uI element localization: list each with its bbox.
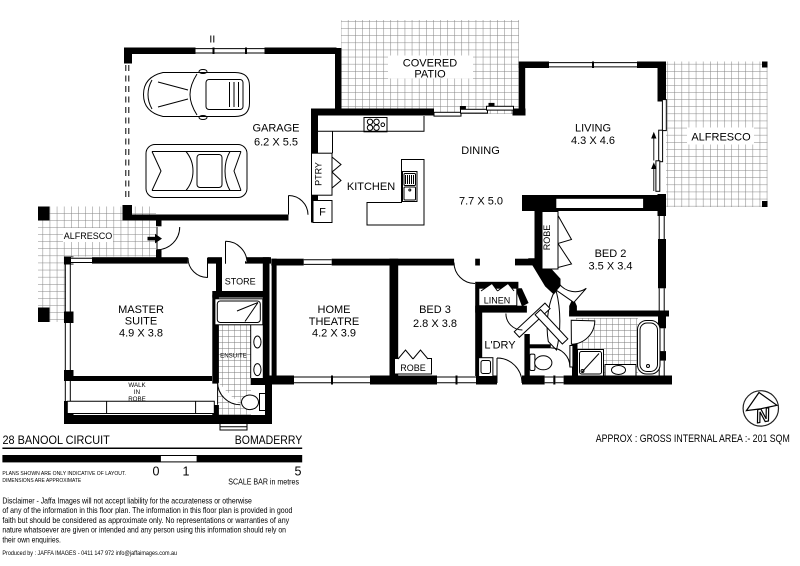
svg-text:of any of the information in t: of any of the information in this floor … bbox=[2, 506, 292, 515]
svg-text:SUITE: SUITE bbox=[125, 316, 157, 328]
svg-text:SCALE BAR in metres: SCALE BAR in metres bbox=[228, 478, 299, 487]
svg-text:2.8 X 3.8: 2.8 X 3.8 bbox=[413, 318, 457, 330]
svg-text:ENSUITE: ENSUITE bbox=[220, 353, 247, 360]
svg-text:faith but should be considere: faith but should be considered as approx… bbox=[2, 516, 290, 525]
svg-text:LIVING: LIVING bbox=[575, 123, 611, 135]
svg-text:BED 3: BED 3 bbox=[419, 304, 451, 316]
svg-text:F: F bbox=[319, 207, 326, 219]
svg-text:3.5 X 3.4: 3.5 X 3.4 bbox=[588, 261, 632, 273]
svg-text:5: 5 bbox=[295, 465, 302, 479]
svg-text:PATIO: PATIO bbox=[414, 69, 446, 81]
svg-text:WALK: WALK bbox=[128, 382, 146, 389]
svg-text:THEATRE: THEATRE bbox=[309, 316, 360, 328]
svg-text:ROBE: ROBE bbox=[128, 396, 146, 403]
svg-text:PTRY: PTRY bbox=[314, 162, 324, 186]
svg-text:GARAGE: GARAGE bbox=[252, 123, 299, 135]
svg-text:STORE: STORE bbox=[225, 277, 256, 287]
svg-text:LINEN: LINEN bbox=[484, 296, 511, 306]
svg-text:7.7 X 5.0: 7.7 X 5.0 bbox=[459, 196, 503, 208]
svg-text:HOME: HOME bbox=[318, 304, 351, 316]
svg-text:4.9 X 3.8: 4.9 X 3.8 bbox=[119, 328, 163, 340]
svg-text:ALFRESCO: ALFRESCO bbox=[64, 231, 113, 241]
svg-text:L'DRY: L'DRY bbox=[484, 340, 516, 352]
svg-text:BED 2: BED 2 bbox=[595, 248, 627, 260]
svg-text:ALFRESCO: ALFRESCO bbox=[691, 132, 751, 144]
svg-text:4.3 X 4.6: 4.3 X 4.6 bbox=[571, 135, 615, 147]
svg-text:PLANS SHOWN ARE ONLY INDICATIV: PLANS SHOWN ARE ONLY INDICATIVE OF LAYOU… bbox=[2, 471, 126, 477]
svg-text:ROBE: ROBE bbox=[542, 225, 552, 251]
svg-text:DIMENSIONS ARE APPROXIMATE: DIMENSIONS ARE APPROXIMATE bbox=[2, 478, 81, 484]
svg-text:IN: IN bbox=[134, 389, 140, 396]
svg-text:0: 0 bbox=[153, 465, 160, 479]
svg-text:KITCHEN: KITCHEN bbox=[347, 181, 395, 193]
svg-text:MASTER: MASTER bbox=[118, 304, 164, 316]
svg-text:Disclaimer - Jaffa Images will: Disclaimer - Jaffa Images will not accep… bbox=[2, 496, 252, 505]
svg-text:APPROX : GROSS INTERNAL AREA :: APPROX : GROSS INTERNAL AREA :- 201 SQM bbox=[596, 433, 790, 445]
svg-text:4.2 X 3.9: 4.2 X 3.9 bbox=[312, 328, 356, 340]
svg-text:nature whatsoever are given or: nature whatsoever are given or intended … bbox=[2, 526, 286, 535]
svg-text:1: 1 bbox=[183, 465, 190, 479]
svg-text:ROBE: ROBE bbox=[400, 363, 426, 373]
svg-text:their own enquiries.: their own enquiries. bbox=[2, 536, 61, 545]
svg-text:Produced by : JAFFA IMAGES - 0: Produced by : JAFFA IMAGES - 0411 147 97… bbox=[2, 550, 177, 557]
svg-text:BOMADERRY: BOMADERRY bbox=[235, 433, 302, 447]
svg-text:6.2 X 5.5: 6.2 X 5.5 bbox=[254, 137, 298, 149]
svg-text:DINING: DINING bbox=[461, 145, 500, 157]
svg-text:28 BANOOL CIRCUIT: 28 BANOOL CIRCUIT bbox=[3, 433, 111, 447]
